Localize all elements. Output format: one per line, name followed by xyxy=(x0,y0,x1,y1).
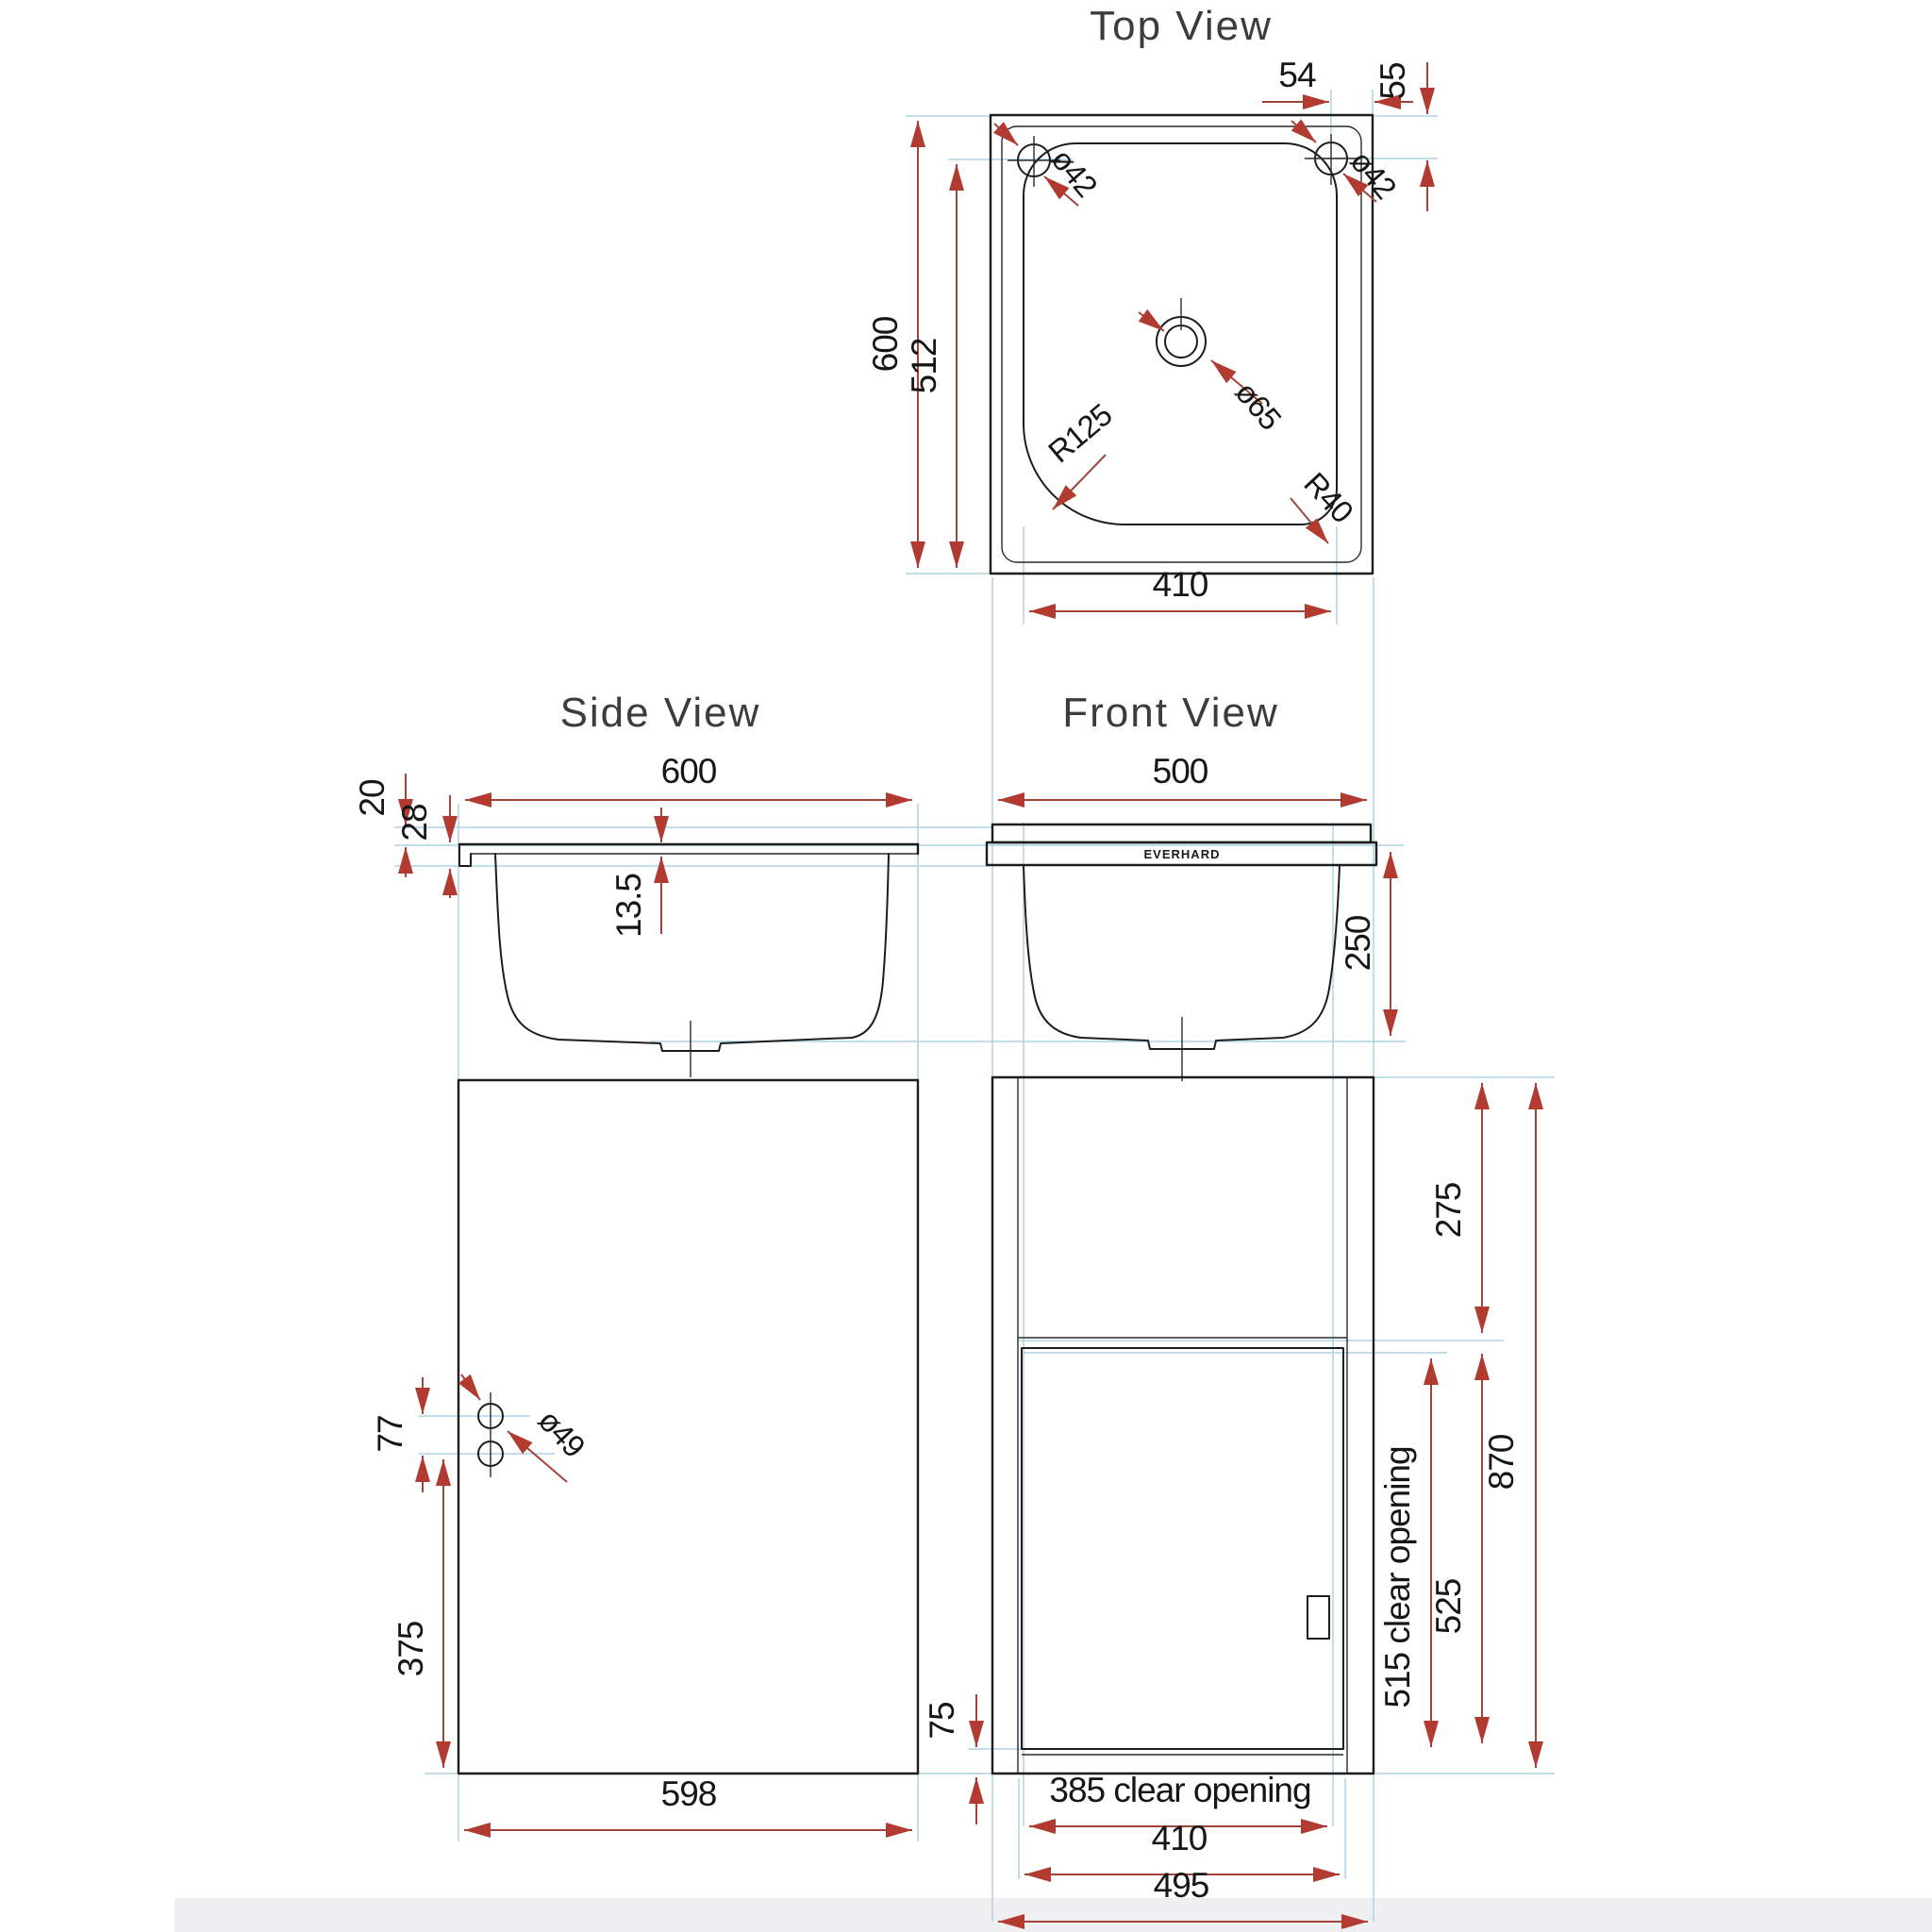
dim-top-bowl-length: 512 xyxy=(905,339,943,394)
bypass-holes xyxy=(478,1392,503,1477)
dim-hole-right-diameter: ø42 xyxy=(1343,143,1403,205)
cabinet-side-view xyxy=(458,1080,918,1774)
dim-cabinet-depth: 598 xyxy=(661,1774,717,1813)
dim-cabinet-hole-diameter: ø49 xyxy=(532,1403,592,1464)
dim-cabinet-holes-from-bottom: 375 xyxy=(391,1621,430,1676)
dim-front-overall-width: 500 xyxy=(1153,752,1208,791)
drain-hole xyxy=(1157,298,1206,366)
laundry-tub-technical-drawing-page: Top View Side View xyxy=(0,0,1932,1932)
dim-cabinet-clear-opening-height: 515 clear opening xyxy=(1378,1446,1417,1707)
dim-side-overall-width: 600 xyxy=(661,752,717,791)
dim-hole-left-diameter: ø42 xyxy=(1044,142,1104,203)
dim-cabinet-overall-width: 495 xyxy=(1154,1866,1209,1905)
tap-hole-right xyxy=(1305,134,1357,185)
dim-side-edge-height: 28 xyxy=(395,804,434,841)
dim-cabinet-top-section: 275 xyxy=(1429,1182,1468,1238)
side-view: Side View xyxy=(459,690,918,1077)
dim-small-corner-radius: R40 xyxy=(1297,465,1360,529)
front-view: Front View EVERHARD xyxy=(987,690,1376,1081)
floor-band xyxy=(175,1898,1932,1932)
dim-top-hole-offset-x: 54 xyxy=(1278,56,1316,94)
dim-top-overall-height: 600 xyxy=(866,316,905,372)
cabinet-front-view xyxy=(992,1077,1374,1774)
dim-side-rim-height: 20 xyxy=(353,779,391,817)
top-view-title: Top View xyxy=(1090,3,1273,49)
cabinet-door xyxy=(1022,1348,1343,1749)
dim-top-bowl-width: 410 xyxy=(1153,565,1208,604)
dim-cabinet-overall-height: 870 xyxy=(1482,1434,1521,1490)
side-view-title: Side View xyxy=(560,690,761,736)
dim-side-top-thickness: 13.5 xyxy=(609,874,648,938)
dim-top-hole-offset-y: 55 xyxy=(1374,62,1412,100)
door-handle xyxy=(1307,1596,1329,1639)
dimensions: 600 512 54 55 ø42 ø42 ø65 R125 R40 410 xyxy=(353,56,1536,1922)
technical-drawing: Top View Side View xyxy=(0,0,1932,1932)
dim-cabinet-plinth: 75 xyxy=(923,1702,961,1740)
dim-front-bowl-depth: 250 xyxy=(1339,915,1377,971)
dim-cabinet-door-height: 525 xyxy=(1429,1578,1468,1634)
front-view-title: Front View xyxy=(1062,690,1279,736)
dim-bowl-corner-radius: R125 xyxy=(1041,397,1118,469)
dim-cabinet-hole-gap: 77 xyxy=(371,1415,409,1452)
dim-cabinet-clear-opening-width: 385 clear opening xyxy=(1049,1771,1310,1809)
brand-logo: EVERHARD xyxy=(1144,847,1221,861)
dim-cabinet-door-width: 410 xyxy=(1152,1819,1207,1857)
